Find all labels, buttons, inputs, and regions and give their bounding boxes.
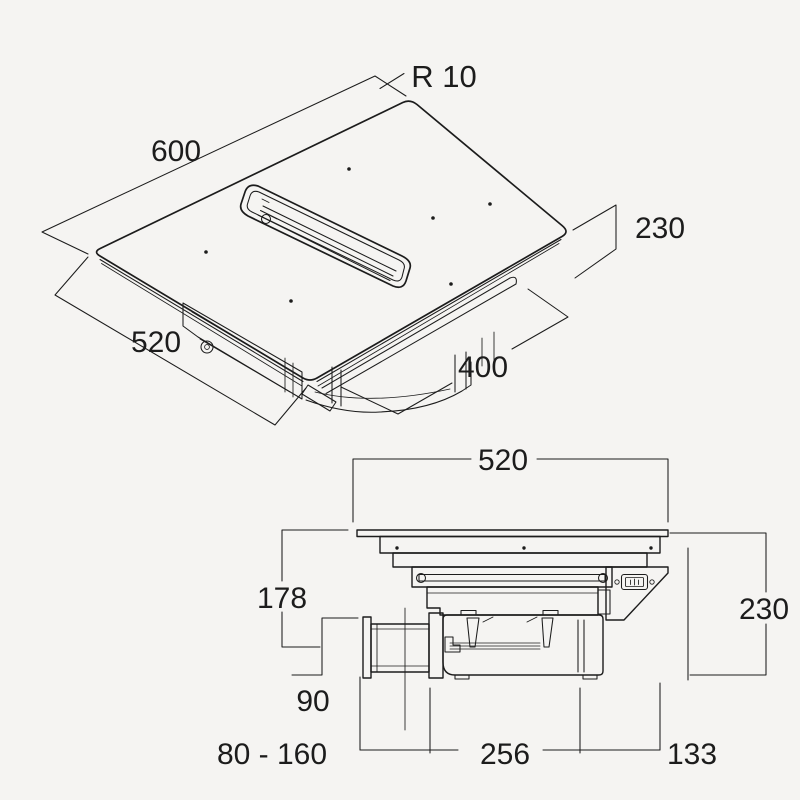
side-elevation-view: 520 178 230 90 80 - 160 256 133: [217, 444, 789, 771]
iec-socket-pins: [631, 579, 639, 585]
motor-clamp: [445, 637, 460, 652]
dim-line-600: [42, 76, 406, 254]
motor-vertical-pair: [578, 620, 584, 672]
dim-label-iso-depth: 520: [131, 326, 181, 359]
frame-left-details: [192, 312, 295, 397]
screw-dot-2: [522, 546, 525, 549]
dim-label-iso-outlet-length: 400: [458, 351, 508, 384]
iec-screw-right: [650, 580, 654, 584]
isometric-view: R 10 600 520 400 230: [42, 59, 685, 425]
dim-label-duct-range: 80 - 160: [217, 738, 327, 771]
dim-label-side-178: 178: [257, 582, 307, 615]
plenum-right-connector: [598, 590, 610, 614]
iso-dimensions: R 10 600 520 400 230: [42, 59, 685, 425]
dim-label-iso-width: 600: [151, 135, 201, 168]
screw-dot-3: [649, 546, 652, 549]
duct-tube: [371, 624, 429, 672]
frame-box-2: [393, 553, 647, 567]
blower-hull-inner: [315, 389, 450, 398]
frame-box-1: [380, 537, 660, 554]
dim-label-duct-diameter: 90: [296, 685, 329, 718]
duct-tube-lines: [371, 624, 429, 672]
dim-line-230-iso: [573, 205, 616, 278]
dim-label-corner-radius: R 10: [411, 59, 476, 94]
dim-label-motor-length: 256: [480, 738, 530, 771]
extraction-grille: [241, 185, 411, 287]
side-dimensions: 520 178 230 90 80 - 160 256 133: [217, 444, 789, 771]
motor-box: [443, 615, 603, 675]
dim-label-iso-height: 230: [635, 212, 685, 245]
underside-structure: [183, 277, 516, 412]
duct-flange: [363, 617, 371, 678]
dim-label-side-height: 230: [739, 593, 789, 626]
rail-band: [419, 575, 605, 582]
dim-label-edge-offset: 133: [667, 738, 717, 771]
side-structure: [357, 530, 668, 730]
motor-strut-right: [542, 618, 553, 647]
duct-collar: [429, 613, 443, 678]
rail-box: [412, 567, 612, 587]
dim-extensions-bottom: [360, 548, 688, 753]
plenum-box: [427, 587, 598, 615]
screw-head-inner: [205, 345, 210, 350]
motor-diagonals: [483, 617, 537, 622]
iec-screw-left: [615, 580, 619, 584]
motor-stripes: [450, 643, 540, 649]
dimension-drawing-canvas: R 10 600 520 400 230: [0, 0, 800, 800]
glass-plate-side: [357, 530, 668, 537]
dim-label-side-width: 520: [478, 444, 528, 477]
screw-dot-1: [395, 546, 398, 549]
